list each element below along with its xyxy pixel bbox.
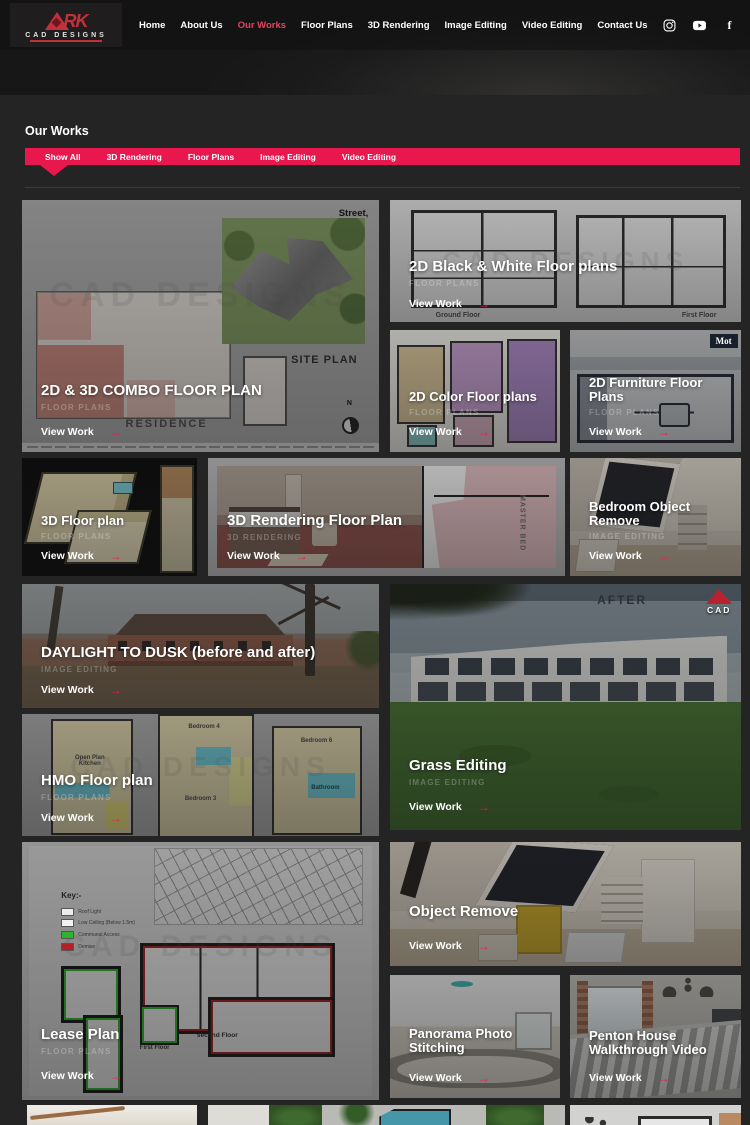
card-lease-plan[interactable]: Key:- Roof Light Low Ceiling (Below 1.5m… — [22, 842, 379, 1100]
page-title: Our Works — [25, 124, 89, 138]
card-partial-2[interactable] — [208, 1105, 565, 1125]
nav-item-image-editing[interactable]: Image Editing — [445, 20, 507, 31]
caption-first-floor: First Floor — [682, 312, 717, 319]
view-work-link[interactable]: View Work→ — [589, 425, 734, 439]
caption-mot-logo: Mot — [710, 334, 738, 348]
caption-first-floor: First Floor — [140, 1045, 170, 1051]
active-filter-caret — [40, 165, 68, 176]
card-daylight-to-dusk[interactable]: DAYLIGHT TO DUSK (before and after) IMAG… — [22, 584, 379, 708]
page: RK CAD DESIGNS Home About Us Our Works F… — [0, 0, 750, 1125]
legend-low-ceiling: Low Ceiling (Below 1.5m) — [61, 919, 135, 927]
card-title: 3D Floor plan — [41, 514, 124, 529]
card-2d-bw-floor-plans[interactable]: CAD DESIGNS Ground Floor First Floor 2D … — [390, 200, 741, 322]
card-title: 2D Color Floor plans — [409, 390, 537, 405]
view-work-link[interactable]: View Work→ — [409, 1071, 554, 1085]
card-image — [27, 1105, 197, 1125]
arrow-right-icon: → — [110, 549, 122, 563]
caption-bathroom: Bathroom — [300, 785, 350, 791]
view-work-link[interactable]: View Work→ — [41, 811, 153, 825]
legend-demise: Demise — [61, 943, 95, 951]
view-work-link[interactable]: View Work→ — [41, 1069, 122, 1083]
card-subtitle: IMAGE EDITING — [41, 665, 315, 674]
filter-floor-plans[interactable]: Floor Plans — [188, 152, 234, 162]
social-links: f — [663, 19, 736, 32]
arrow-right-icon: → — [110, 683, 122, 697]
caption-bedroom-4: Bedroom 4 — [165, 724, 244, 730]
caption-open-plan-kitchen: Open Plan Kitchen — [59, 755, 120, 767]
card-3d-rendering-floor-plan[interactable]: MASTER BED 3D Rendering Floor Plan 3D RE… — [208, 458, 565, 576]
nav-item-contact-us[interactable]: Contact Us — [597, 20, 647, 31]
card-3d-floor-plan[interactable]: 3D Floor plan FLOOR PLANS View Work→ — [22, 458, 197, 576]
caption-bedroom-6: Bedroom 6 — [283, 738, 351, 744]
main-nav: Home About Us Our Works Floor Plans 3D R… — [139, 20, 648, 31]
view-work-link[interactable]: View Work→ — [41, 425, 262, 439]
card-title: DAYLIGHT TO DUSK (before and after) — [41, 645, 315, 662]
card-subtitle: FLOOR PLANS — [589, 408, 734, 417]
nav-item-video-editing[interactable]: Video Editing — [522, 20, 583, 31]
caption-ground-floor: Ground Floor — [436, 312, 481, 319]
card-title: Bedroom Object Remove — [589, 500, 734, 529]
filter-image-editing[interactable]: Image Editing — [260, 152, 316, 162]
card-title: 3D Rendering Floor Plan — [227, 513, 402, 530]
caption-master-bed: MASTER BED — [519, 495, 526, 551]
facebook-icon[interactable]: f — [723, 19, 736, 32]
nav-item-home[interactable]: Home — [139, 20, 165, 31]
card-2d-furniture-floor-plans[interactable]: Mot 2D Furniture Floor Plans FLOOR PLANS… — [570, 330, 741, 452]
card-subtitle: FLOOR PLANS — [41, 532, 124, 541]
card-title: Penton House Walkthrough Video — [589, 1029, 734, 1058]
logo-name: CAD DESIGNS — [25, 32, 107, 39]
caption-site-plan: SITE PLAN — [291, 354, 357, 366]
card-title: 2D Furniture Floor Plans — [589, 376, 734, 405]
card-partial-3[interactable] — [570, 1105, 741, 1125]
card-2d-color-floor-plans[interactable]: 2D Color Floor plans FLOOR PLANS View Wo… — [390, 330, 560, 452]
nav-item-our-works[interactable]: Our Works — [238, 20, 286, 31]
card-grass-editing[interactable]: AFTER CAD Grass Editing IMAGE EDITING Vi… — [390, 584, 741, 830]
caption-key: Key:- — [61, 891, 81, 900]
arrow-right-icon: → — [110, 425, 122, 439]
cad-logo-icon: CAD — [706, 589, 732, 615]
filter-3d-rendering[interactable]: 3D Rendering — [107, 152, 162, 162]
card-subtitle: FLOOR PLANS — [41, 1047, 122, 1056]
arrow-right-icon: → — [658, 549, 670, 563]
nav-item-3d-rendering[interactable]: 3D Rendering — [368, 20, 430, 31]
top-navbar: RK CAD DESIGNS Home About Us Our Works F… — [0, 0, 750, 50]
card-title: Panorama Photo Stitching — [409, 1027, 554, 1056]
arrow-right-icon: → — [478, 297, 490, 311]
filter-show-all[interactable]: Show All — [45, 152, 81, 162]
arrow-right-icon: → — [478, 939, 490, 953]
arrow-right-icon: → — [110, 1069, 122, 1083]
card-bedroom-object-remove[interactable]: Bedroom Object Remove IMAGE EDITING View… — [570, 458, 741, 576]
card-subtitle: FLOOR PLANS — [409, 408, 537, 417]
view-work-link[interactable]: View Work→ — [409, 297, 617, 311]
watermark: CAD DESIGNS — [22, 276, 379, 315]
section-divider — [25, 187, 740, 188]
arrow-right-icon: → — [658, 425, 670, 439]
card-penton-house-walkthrough-video[interactable]: Penton House Walkthrough Video View Work… — [570, 975, 741, 1098]
card-subtitle: IMAGE EDITING — [409, 778, 507, 787]
view-work-link[interactable]: View Work→ — [409, 800, 507, 814]
brand-logo[interactable]: RK CAD DESIGNS — [10, 3, 122, 47]
card-subtitle: 3D RENDERING — [227, 533, 402, 542]
card-title: Object Remove — [409, 904, 518, 921]
card-title: 2D & 3D COMBO FLOOR PLAN — [41, 383, 262, 400]
view-work-link[interactable]: View Work→ — [589, 549, 734, 563]
arrow-right-icon: → — [296, 549, 308, 563]
card-image — [570, 1105, 741, 1125]
filter-video-editing[interactable]: Video Editing — [342, 152, 396, 162]
arrow-right-icon: → — [658, 1071, 670, 1085]
youtube-icon[interactable] — [693, 19, 706, 32]
caption-street: Street, — [339, 208, 369, 219]
card-title: HMO Floor plan — [41, 773, 153, 790]
logo-underline — [30, 40, 102, 42]
nav-item-about-us[interactable]: About Us — [180, 20, 222, 31]
card-panorama-photo-stitching[interactable]: Panorama Photo Stitching View Work→ — [390, 975, 560, 1098]
arrow-right-icon: → — [478, 1071, 490, 1085]
works-grid: Street, SITE PLAN RESIDENCE N CAD DESIGN… — [22, 200, 741, 1125]
logo-mark: RK — [45, 8, 88, 30]
legend-roof-light: Roof Light — [61, 908, 101, 916]
caption-cad: CAD — [707, 605, 731, 615]
caption-bedroom-3: Bedroom 3 — [165, 796, 236, 802]
view-work-link[interactable]: View Work→ — [409, 425, 537, 439]
card-subtitle: FLOOR PLANS — [41, 793, 153, 802]
card-subtitle: IMAGE EDITING — [589, 532, 734, 541]
compass-n-label: N — [347, 400, 352, 407]
view-work-link[interactable]: View Work→ — [227, 549, 402, 563]
view-work-link[interactable]: View Work→ — [409, 939, 518, 953]
card-2d-3d-combo-floor-plan[interactable]: Street, SITE PLAN RESIDENCE N CAD DESIGN… — [22, 200, 379, 452]
view-work-link[interactable]: View Work→ — [41, 549, 124, 563]
caption-second-floor: second Floor — [197, 1032, 238, 1039]
card-image — [208, 1105, 565, 1125]
view-work-link[interactable]: View Work→ — [41, 683, 315, 697]
card-title: 2D Black & White Floor plans — [409, 259, 617, 276]
card-subtitle: FLOOR PLANS — [41, 403, 262, 412]
card-hmo-floor-plan[interactable]: Open Plan Kitchen Bedroom 4 Bedroom 3 Be… — [22, 714, 379, 836]
legend-communal-access: Communal Access — [61, 931, 119, 939]
card-object-remove[interactable]: Object Remove View Work→ — [390, 842, 741, 966]
arrow-right-icon: → — [478, 425, 490, 439]
card-subtitle: FLOOR PLANS — [409, 279, 617, 288]
caption-after: AFTER — [597, 593, 647, 607]
filter-bar: Show All 3D Rendering Floor Plans Image … — [25, 148, 740, 165]
card-title: Grass Editing — [409, 758, 507, 775]
nav-item-floor-plans[interactable]: Floor Plans — [301, 20, 353, 31]
view-work-link[interactable]: View Work→ — [589, 1071, 734, 1085]
arrow-right-icon: → — [478, 800, 490, 814]
instagram-icon[interactable] — [663, 19, 676, 32]
card-title: Lease Plan — [41, 1027, 122, 1044]
card-partial-1[interactable] — [27, 1105, 197, 1125]
arrow-right-icon: → — [110, 811, 122, 825]
